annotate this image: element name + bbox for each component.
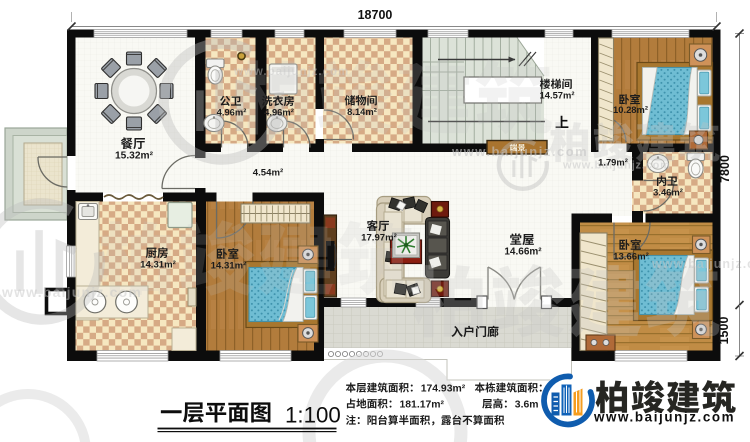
svg-text:www.baijunjz.com: www.baijunjz.com xyxy=(1,284,142,300)
svg-text:14.66m²: 14.66m² xyxy=(504,247,542,258)
svg-text:4.96m²: 4.96m² xyxy=(217,107,247,118)
svg-text:7800: 7800 xyxy=(718,155,732,183)
svg-text:www.baijunjz.com: www.baijunjz.com xyxy=(593,410,735,425)
svg-text:3.46m²: 3.46m² xyxy=(653,187,683,198)
svg-text:8.14m²: 8.14m² xyxy=(347,106,377,117)
svg-text:14.31m²: 14.31m² xyxy=(140,260,176,271)
svg-text:1500: 1500 xyxy=(717,317,731,345)
svg-text:13.66m²: 13.66m² xyxy=(613,252,649,263)
svg-text:14.31m²: 14.31m² xyxy=(211,261,247,272)
svg-text:1:100: 1:100 xyxy=(285,403,341,428)
svg-text:3.6m: 3.6m xyxy=(515,400,539,411)
svg-text:www.baijunjz.com: www.baijunjz.com xyxy=(233,66,349,78)
svg-text:www.baijunjz.com: www.baijunjz.com xyxy=(651,257,750,271)
svg-text:18700: 18700 xyxy=(358,8,393,22)
svg-text:14.57m²: 14.57m² xyxy=(540,90,575,101)
svg-text:4.96m²: 4.96m² xyxy=(264,107,294,118)
svg-text:1.79m²: 1.79m² xyxy=(598,157,628,168)
svg-text:4.54m²: 4.54m² xyxy=(253,168,283,179)
svg-text:174.93m²: 174.93m² xyxy=(421,384,466,395)
svg-text:15.32m²: 15.32m² xyxy=(115,151,154,162)
svg-text:10.28m²: 10.28m² xyxy=(613,104,648,115)
svg-text:181.17m²: 181.17m² xyxy=(400,400,445,411)
svg-text:17.97m²: 17.97m² xyxy=(361,233,397,244)
